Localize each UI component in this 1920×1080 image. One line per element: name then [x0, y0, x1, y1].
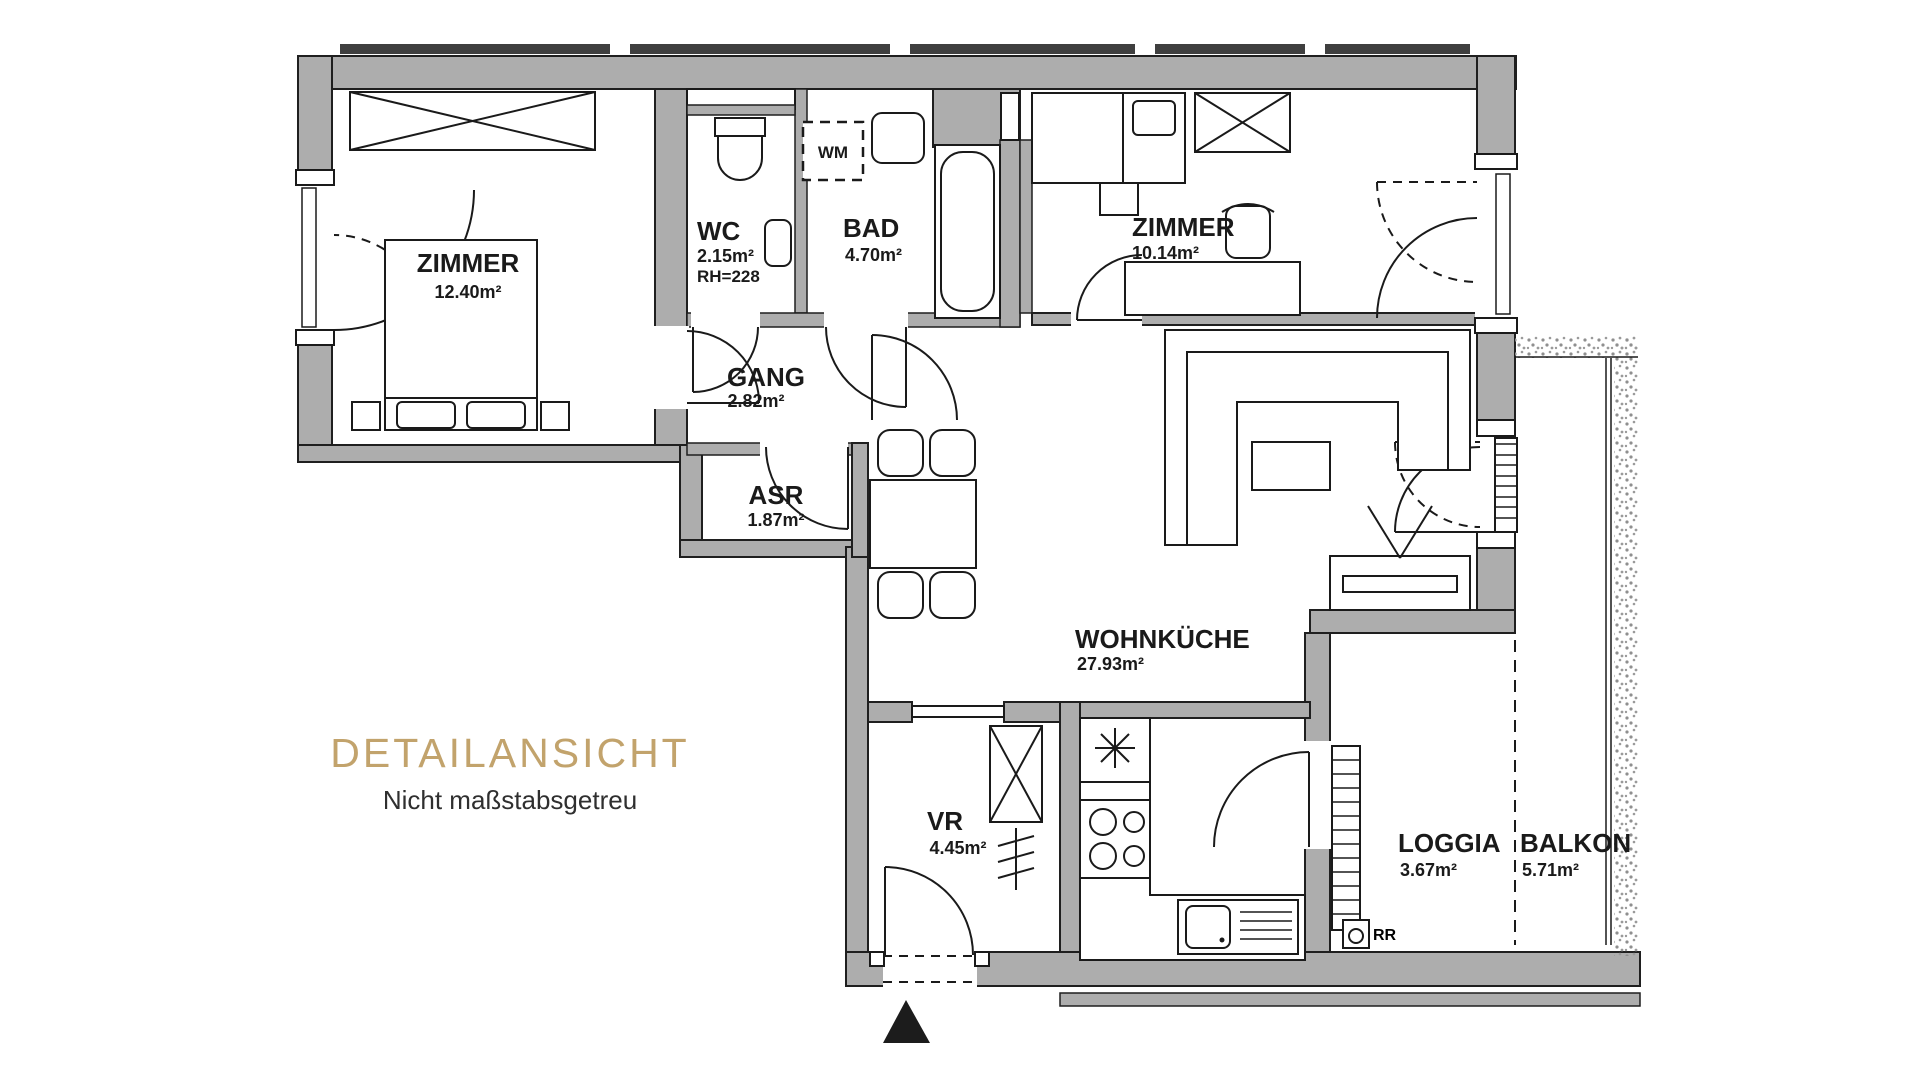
neighbour-wall-segment [630, 44, 890, 54]
room-label-wohnkueche: WOHNKÜCHE 27.93m² [1075, 624, 1250, 674]
window-icon [1377, 154, 1517, 333]
neighbour-wall-segment [910, 44, 1135, 54]
wall-lower-left [846, 547, 868, 985]
wall-wk-bottom-right [1310, 610, 1515, 633]
desk-icon [1125, 262, 1300, 315]
page-subtitle: Nicht maßstabsgetreu [300, 785, 720, 816]
room-area: 4.45m² [929, 838, 986, 858]
chair-icon [878, 572, 923, 618]
room-label-bad: BAD 4.70m² [843, 213, 902, 265]
room-area: 27.93m² [1077, 654, 1144, 674]
wardrobe-icon [990, 726, 1042, 822]
kitchen-sink-icon [1178, 900, 1298, 954]
wall-asr-right [852, 443, 868, 557]
room-label-zimmer-2: ZIMMER 10.14m² [1132, 212, 1235, 263]
room-area: 3.67m² [1400, 860, 1457, 880]
wall-vr-top-a [868, 702, 912, 722]
neighbour-wall-segment [1325, 44, 1470, 54]
room-name: ZIMMER [1132, 212, 1235, 242]
door-swing [872, 335, 957, 420]
room-area: 2.82m² [727, 391, 784, 411]
room-label-wc: WC 2.15m² RH=228 [697, 216, 760, 286]
room-area: 12.40m² [434, 282, 501, 302]
room-label-asr: ASR 1.87m² [747, 480, 804, 530]
wall-bottom-ledge [1060, 993, 1640, 1006]
room-area: 1.87m² [747, 510, 804, 530]
page-title: DETAILANSICHT [300, 730, 720, 777]
room-name: ASR [749, 480, 804, 510]
door-swing [1214, 752, 1309, 847]
coat-rack-icon [998, 828, 1034, 890]
sofa-icon [1165, 330, 1470, 545]
room-area: 5.71m² [1522, 860, 1579, 880]
floorplan-drawing: ZIMMER 12.40m² WC 2.15m² RH=228 BAD 4.70… [0, 0, 1920, 1080]
drain-icon [1343, 920, 1369, 948]
wall-zimmer1-bottom [298, 445, 702, 462]
railing-icon [1332, 746, 1360, 930]
room-name: BAD [843, 213, 899, 243]
room-area: 2.15m² [697, 246, 754, 266]
bed-icon [1032, 93, 1185, 215]
wall-top [298, 56, 1516, 89]
entrance-arrow-icon [883, 1000, 930, 1043]
title-block: DETAILANSICHT Nicht maßstabsgetreu [300, 730, 720, 816]
chair-icon [930, 572, 975, 618]
room-note: RH=228 [697, 267, 760, 286]
chair-icon [878, 430, 923, 476]
room-name: VR [927, 806, 963, 836]
furniture [350, 89, 1470, 960]
wc-sink-icon [765, 220, 791, 266]
fridge-icon [1095, 728, 1135, 768]
floorplan-page: ZIMMER 12.40m² WC 2.15m² RH=228 BAD 4.70… [0, 0, 1920, 1080]
room-name: GANG [727, 362, 805, 392]
wardrobe-icon [350, 92, 595, 150]
room-name: BALKON [1520, 828, 1631, 858]
room-name: LOGGIA [1398, 828, 1501, 858]
room-label-gang: GANG 2.82m² [727, 362, 805, 411]
wall-vr-right [1060, 702, 1080, 952]
room-name: WOHNKÜCHE [1075, 624, 1250, 654]
coffee-table-icon [1252, 442, 1330, 490]
neighbour-wall-segment [340, 44, 610, 54]
bathtub-icon [935, 145, 1000, 318]
exterior-wall-hatched [1614, 336, 1638, 956]
room-area: 10.14m² [1132, 243, 1199, 263]
bath-sink-icon [872, 113, 924, 163]
duct-icon [1001, 93, 1019, 140]
wardrobe-icon [1195, 93, 1290, 152]
rain-drain-label: RR [1373, 927, 1397, 944]
room-label-loggia: LOGGIA 3.67m² [1398, 828, 1501, 880]
wall-asr-bottom [680, 540, 870, 557]
open-door-leaf [912, 706, 1004, 717]
wall-zimmer2-left [1020, 140, 1032, 313]
room-name: ZIMMER [417, 248, 520, 278]
room-name: WC [697, 216, 741, 246]
wall-shaft [1000, 140, 1020, 327]
toilet-icon [687, 89, 795, 180]
dining-table-icon [870, 480, 976, 568]
neighbour-wall-segment [1155, 44, 1305, 54]
chair-icon [930, 430, 975, 476]
room-label-vr: VR 4.45m² [927, 806, 987, 858]
room-area: 4.70m² [845, 245, 902, 265]
washing-machine-label: WM [818, 143, 848, 162]
door-swing [826, 327, 906, 407]
wall-kitchen-back [1080, 702, 1310, 718]
